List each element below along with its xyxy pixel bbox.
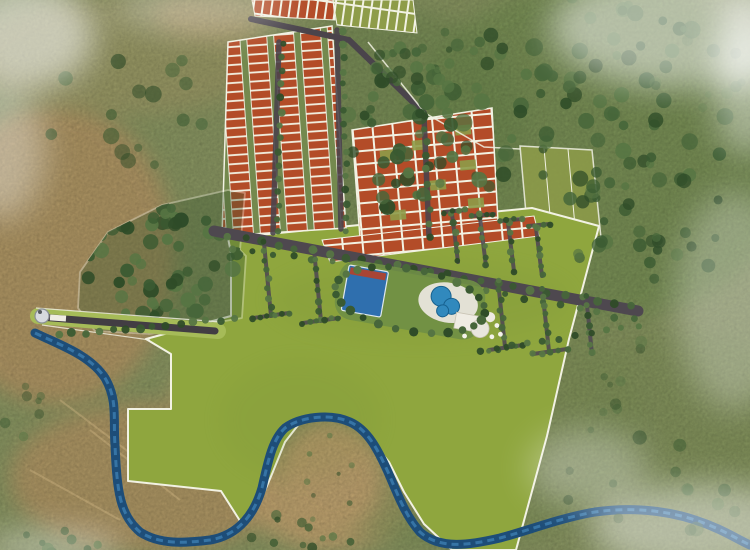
tree bbox=[147, 297, 158, 308]
tree bbox=[149, 323, 156, 330]
tree bbox=[315, 308, 322, 315]
tree bbox=[422, 165, 430, 173]
tree bbox=[472, 172, 488, 188]
tree bbox=[270, 252, 276, 258]
tree bbox=[507, 248, 514, 255]
tree bbox=[327, 433, 333, 439]
tree bbox=[471, 83, 482, 94]
tree bbox=[455, 258, 461, 264]
hedge-tree bbox=[459, 326, 467, 334]
tree bbox=[540, 294, 546, 300]
tree bbox=[410, 61, 423, 74]
tree bbox=[494, 345, 500, 351]
tree bbox=[168, 218, 182, 232]
tree bbox=[435, 179, 444, 188]
tree bbox=[136, 259, 147, 270]
tree bbox=[576, 195, 589, 208]
tree bbox=[115, 290, 128, 303]
tree bbox=[496, 287, 502, 293]
tree bbox=[498, 297, 504, 303]
tree bbox=[199, 294, 211, 306]
tree bbox=[470, 47, 479, 56]
tree bbox=[144, 279, 156, 291]
hedge-tree bbox=[477, 315, 487, 325]
tree bbox=[315, 298, 322, 305]
tree bbox=[277, 80, 284, 87]
tree bbox=[300, 542, 307, 549]
tree bbox=[274, 517, 280, 523]
tree bbox=[189, 304, 204, 319]
tree bbox=[421, 112, 428, 119]
tree bbox=[19, 432, 29, 442]
hedge-tree bbox=[332, 283, 339, 290]
hedge-tree bbox=[470, 322, 477, 329]
tree bbox=[310, 516, 316, 522]
tree bbox=[498, 324, 505, 331]
tree bbox=[484, 212, 489, 217]
tree bbox=[249, 315, 256, 322]
tree bbox=[508, 342, 515, 349]
tree bbox=[546, 70, 558, 82]
tree bbox=[561, 291, 569, 299]
tree bbox=[539, 126, 555, 142]
tree bbox=[434, 156, 447, 169]
tree bbox=[198, 277, 213, 292]
tree bbox=[145, 86, 162, 103]
tree bbox=[543, 311, 549, 317]
tree bbox=[340, 121, 347, 128]
tree bbox=[274, 216, 280, 222]
tree bbox=[315, 287, 321, 293]
tree bbox=[96, 328, 104, 336]
tree bbox=[227, 253, 235, 261]
tree bbox=[400, 48, 411, 59]
hedge-tree bbox=[421, 268, 429, 276]
tree bbox=[217, 317, 225, 325]
tree bbox=[55, 331, 63, 339]
tree bbox=[573, 249, 583, 259]
hedge-tree bbox=[374, 319, 383, 328]
tree bbox=[538, 170, 547, 179]
tree bbox=[497, 43, 509, 55]
tree bbox=[524, 340, 531, 347]
tree bbox=[329, 532, 338, 541]
tree bbox=[705, 91, 712, 98]
tree bbox=[307, 319, 313, 325]
tree bbox=[536, 246, 542, 252]
tree bbox=[177, 320, 185, 328]
tree bbox=[209, 260, 221, 272]
tree bbox=[539, 351, 546, 358]
tree bbox=[486, 348, 491, 353]
tree bbox=[279, 68, 286, 75]
tree bbox=[347, 500, 353, 506]
tree bbox=[275, 228, 281, 234]
tree bbox=[342, 254, 351, 263]
tree bbox=[593, 308, 600, 315]
tree bbox=[291, 252, 298, 259]
tree bbox=[610, 299, 619, 308]
tree bbox=[539, 286, 545, 292]
tree bbox=[538, 263, 544, 269]
tree bbox=[482, 243, 488, 249]
tree bbox=[343, 228, 349, 234]
tree bbox=[560, 98, 572, 110]
tree bbox=[231, 315, 238, 322]
tree bbox=[390, 149, 405, 164]
tree bbox=[421, 126, 427, 132]
tree bbox=[422, 152, 430, 160]
tree bbox=[329, 315, 335, 321]
tree bbox=[277, 123, 283, 129]
tree bbox=[543, 322, 550, 329]
tree bbox=[497, 307, 503, 313]
tree bbox=[434, 67, 441, 74]
tree bbox=[595, 235, 608, 248]
tree bbox=[441, 28, 450, 37]
tree bbox=[519, 216, 525, 222]
tree bbox=[243, 234, 250, 241]
tree bbox=[340, 80, 346, 86]
tree bbox=[134, 144, 142, 152]
tree bbox=[82, 330, 90, 338]
hedge-tree bbox=[346, 306, 356, 316]
hedge-tree bbox=[353, 266, 361, 274]
tree bbox=[614, 87, 629, 102]
tree bbox=[698, 103, 707, 112]
tree bbox=[652, 172, 667, 187]
tree bbox=[532, 224, 537, 229]
hedge-tree bbox=[360, 314, 367, 321]
tree bbox=[481, 57, 495, 71]
tree bbox=[541, 222, 547, 228]
hedge-tree bbox=[465, 285, 473, 293]
tree bbox=[378, 156, 390, 168]
tree bbox=[161, 322, 169, 330]
tree bbox=[313, 257, 319, 263]
tree bbox=[225, 261, 241, 277]
tree bbox=[444, 58, 454, 68]
tree bbox=[604, 177, 615, 188]
tree bbox=[451, 39, 464, 52]
tree bbox=[547, 349, 553, 355]
tree bbox=[618, 325, 624, 331]
tree bbox=[339, 41, 347, 49]
tree bbox=[520, 295, 528, 303]
tree bbox=[167, 204, 176, 213]
tree bbox=[633, 226, 645, 238]
tree bbox=[196, 118, 208, 130]
tree bbox=[262, 258, 268, 264]
tree bbox=[586, 322, 593, 329]
tree bbox=[305, 523, 313, 531]
tree bbox=[484, 28, 499, 43]
tree bbox=[344, 160, 351, 167]
tree bbox=[279, 311, 285, 317]
tree bbox=[264, 313, 269, 318]
tree bbox=[425, 194, 431, 200]
tree bbox=[111, 54, 126, 69]
tree bbox=[599, 408, 607, 416]
tree bbox=[290, 245, 297, 252]
tree bbox=[67, 328, 76, 337]
tree bbox=[610, 314, 618, 322]
tree bbox=[601, 373, 608, 380]
tree bbox=[343, 201, 351, 209]
tree bbox=[619, 121, 629, 131]
tree bbox=[652, 233, 661, 242]
tree bbox=[589, 330, 595, 336]
tree bbox=[173, 241, 184, 252]
tree bbox=[636, 323, 642, 329]
tree bbox=[536, 252, 543, 259]
tree bbox=[589, 349, 596, 356]
tree bbox=[150, 160, 159, 169]
tree bbox=[35, 398, 42, 405]
tree bbox=[275, 176, 282, 183]
tree bbox=[114, 277, 125, 288]
tree bbox=[276, 93, 284, 101]
tree bbox=[441, 211, 447, 217]
tree bbox=[482, 262, 489, 269]
tree bbox=[441, 133, 454, 146]
tree bbox=[713, 147, 726, 160]
tree bbox=[343, 215, 350, 222]
tree bbox=[313, 266, 319, 272]
hedge-tree bbox=[428, 329, 436, 337]
tree bbox=[461, 145, 471, 155]
tree bbox=[673, 439, 686, 452]
tree bbox=[490, 212, 496, 218]
tree bbox=[307, 451, 313, 457]
tree bbox=[418, 94, 434, 110]
tree bbox=[347, 538, 355, 546]
tree bbox=[547, 222, 553, 228]
tree bbox=[427, 206, 433, 212]
tree bbox=[229, 246, 236, 253]
tree bbox=[525, 38, 543, 56]
tree bbox=[509, 283, 516, 290]
tree bbox=[584, 312, 591, 319]
tree bbox=[511, 269, 518, 276]
tree bbox=[349, 462, 355, 468]
tree bbox=[166, 278, 177, 289]
tree bbox=[577, 305, 584, 312]
tree bbox=[563, 192, 577, 206]
tree bbox=[631, 315, 638, 322]
tree bbox=[106, 109, 117, 120]
tree bbox=[462, 206, 468, 212]
tree bbox=[340, 69, 347, 76]
tree bbox=[0, 418, 10, 429]
tree bbox=[615, 376, 625, 386]
site-plan-svg bbox=[0, 0, 750, 550]
tree bbox=[132, 85, 146, 99]
tree bbox=[646, 152, 656, 162]
tree bbox=[165, 63, 180, 78]
tree bbox=[148, 212, 160, 224]
hedge-tree bbox=[343, 270, 350, 277]
tree bbox=[337, 472, 341, 476]
hedge-tree bbox=[402, 264, 411, 273]
tree bbox=[578, 113, 594, 129]
tree bbox=[275, 242, 283, 250]
tree bbox=[587, 342, 593, 348]
tree bbox=[403, 167, 414, 178]
tree bbox=[478, 226, 484, 232]
tree bbox=[201, 216, 211, 226]
tree bbox=[479, 235, 485, 241]
tree bbox=[176, 55, 187, 66]
tree bbox=[615, 143, 631, 159]
tree bbox=[539, 338, 546, 345]
tree bbox=[22, 383, 29, 390]
tree bbox=[627, 302, 635, 310]
tree bbox=[584, 293, 590, 299]
tree bbox=[304, 478, 311, 485]
tree bbox=[286, 311, 292, 317]
tree bbox=[584, 302, 590, 308]
tree bbox=[272, 313, 278, 319]
tree bbox=[423, 138, 430, 145]
tree bbox=[265, 295, 272, 302]
tree bbox=[326, 250, 334, 258]
tree bbox=[545, 330, 552, 337]
tree bbox=[34, 409, 44, 419]
tree bbox=[312, 247, 318, 253]
tree bbox=[274, 188, 281, 195]
hedge-tree bbox=[409, 327, 418, 336]
tree bbox=[503, 217, 509, 223]
tree bbox=[342, 94, 348, 100]
tree bbox=[586, 179, 600, 193]
tree bbox=[367, 118, 376, 127]
hedge-tree bbox=[475, 294, 483, 302]
tree bbox=[452, 229, 459, 236]
tree bbox=[565, 346, 572, 353]
tree bbox=[162, 234, 173, 245]
tree bbox=[635, 336, 647, 348]
tree bbox=[426, 221, 433, 228]
tree bbox=[278, 109, 286, 117]
tree bbox=[603, 326, 610, 333]
tree bbox=[593, 297, 602, 306]
tree bbox=[536, 89, 545, 98]
tree bbox=[500, 315, 506, 321]
tree bbox=[442, 80, 455, 93]
tree bbox=[202, 317, 209, 324]
tree bbox=[280, 41, 286, 47]
tree bbox=[633, 239, 647, 253]
tree bbox=[526, 286, 535, 295]
tree bbox=[393, 66, 406, 79]
tree bbox=[607, 382, 613, 388]
tree bbox=[114, 144, 130, 160]
tree bbox=[573, 71, 586, 84]
tree bbox=[418, 44, 427, 53]
tree bbox=[143, 234, 158, 249]
tree bbox=[509, 257, 515, 263]
tree bbox=[261, 239, 267, 245]
tree bbox=[391, 179, 401, 189]
tree bbox=[374, 50, 385, 61]
tree bbox=[257, 315, 263, 321]
tree bbox=[368, 91, 379, 102]
tree bbox=[335, 316, 341, 322]
tree bbox=[372, 173, 385, 186]
tree bbox=[474, 93, 491, 110]
tree bbox=[555, 336, 562, 343]
tree bbox=[511, 216, 516, 221]
tree bbox=[276, 163, 283, 170]
hedge-tree bbox=[438, 272, 445, 279]
tree bbox=[224, 233, 232, 241]
tree bbox=[670, 467, 681, 478]
tree bbox=[160, 299, 173, 312]
tree bbox=[189, 317, 198, 326]
tree bbox=[477, 277, 484, 284]
tree bbox=[681, 133, 698, 150]
aerial-site-plan bbox=[0, 0, 750, 550]
tree bbox=[591, 133, 606, 148]
cloud bbox=[528, 428, 648, 508]
tree bbox=[563, 81, 576, 94]
tree bbox=[320, 535, 326, 541]
tree bbox=[110, 326, 117, 333]
tree bbox=[263, 267, 269, 273]
tree bbox=[371, 63, 383, 75]
tree bbox=[46, 128, 58, 140]
tree bbox=[268, 304, 275, 311]
tree bbox=[311, 493, 316, 498]
hedge-tree bbox=[443, 328, 453, 338]
tree bbox=[454, 249, 460, 255]
tree bbox=[649, 274, 659, 284]
tree bbox=[507, 134, 516, 143]
tree bbox=[278, 54, 285, 61]
tree bbox=[177, 114, 190, 127]
tree bbox=[321, 317, 328, 324]
tree bbox=[136, 324, 145, 333]
hedge-tree bbox=[385, 263, 392, 270]
tree bbox=[444, 118, 458, 132]
tree bbox=[555, 348, 561, 354]
tree bbox=[341, 133, 347, 139]
tree bbox=[572, 332, 579, 339]
tree bbox=[411, 72, 424, 85]
tree bbox=[446, 46, 452, 52]
tree bbox=[446, 151, 458, 163]
tree bbox=[299, 321, 305, 327]
tree bbox=[183, 267, 193, 277]
hedge-tree bbox=[332, 291, 340, 299]
tree bbox=[623, 157, 636, 170]
tree bbox=[103, 128, 119, 144]
tree bbox=[376, 191, 389, 204]
tree bbox=[314, 318, 319, 323]
tree bbox=[121, 325, 129, 333]
tree bbox=[541, 302, 548, 309]
tree bbox=[507, 230, 513, 236]
tree bbox=[656, 93, 671, 108]
tree bbox=[277, 134, 284, 141]
tree bbox=[341, 54, 348, 61]
tree bbox=[128, 276, 138, 286]
tree bbox=[424, 181, 431, 188]
tree bbox=[469, 213, 475, 219]
hedge-tree bbox=[392, 325, 399, 332]
tree bbox=[342, 173, 348, 179]
